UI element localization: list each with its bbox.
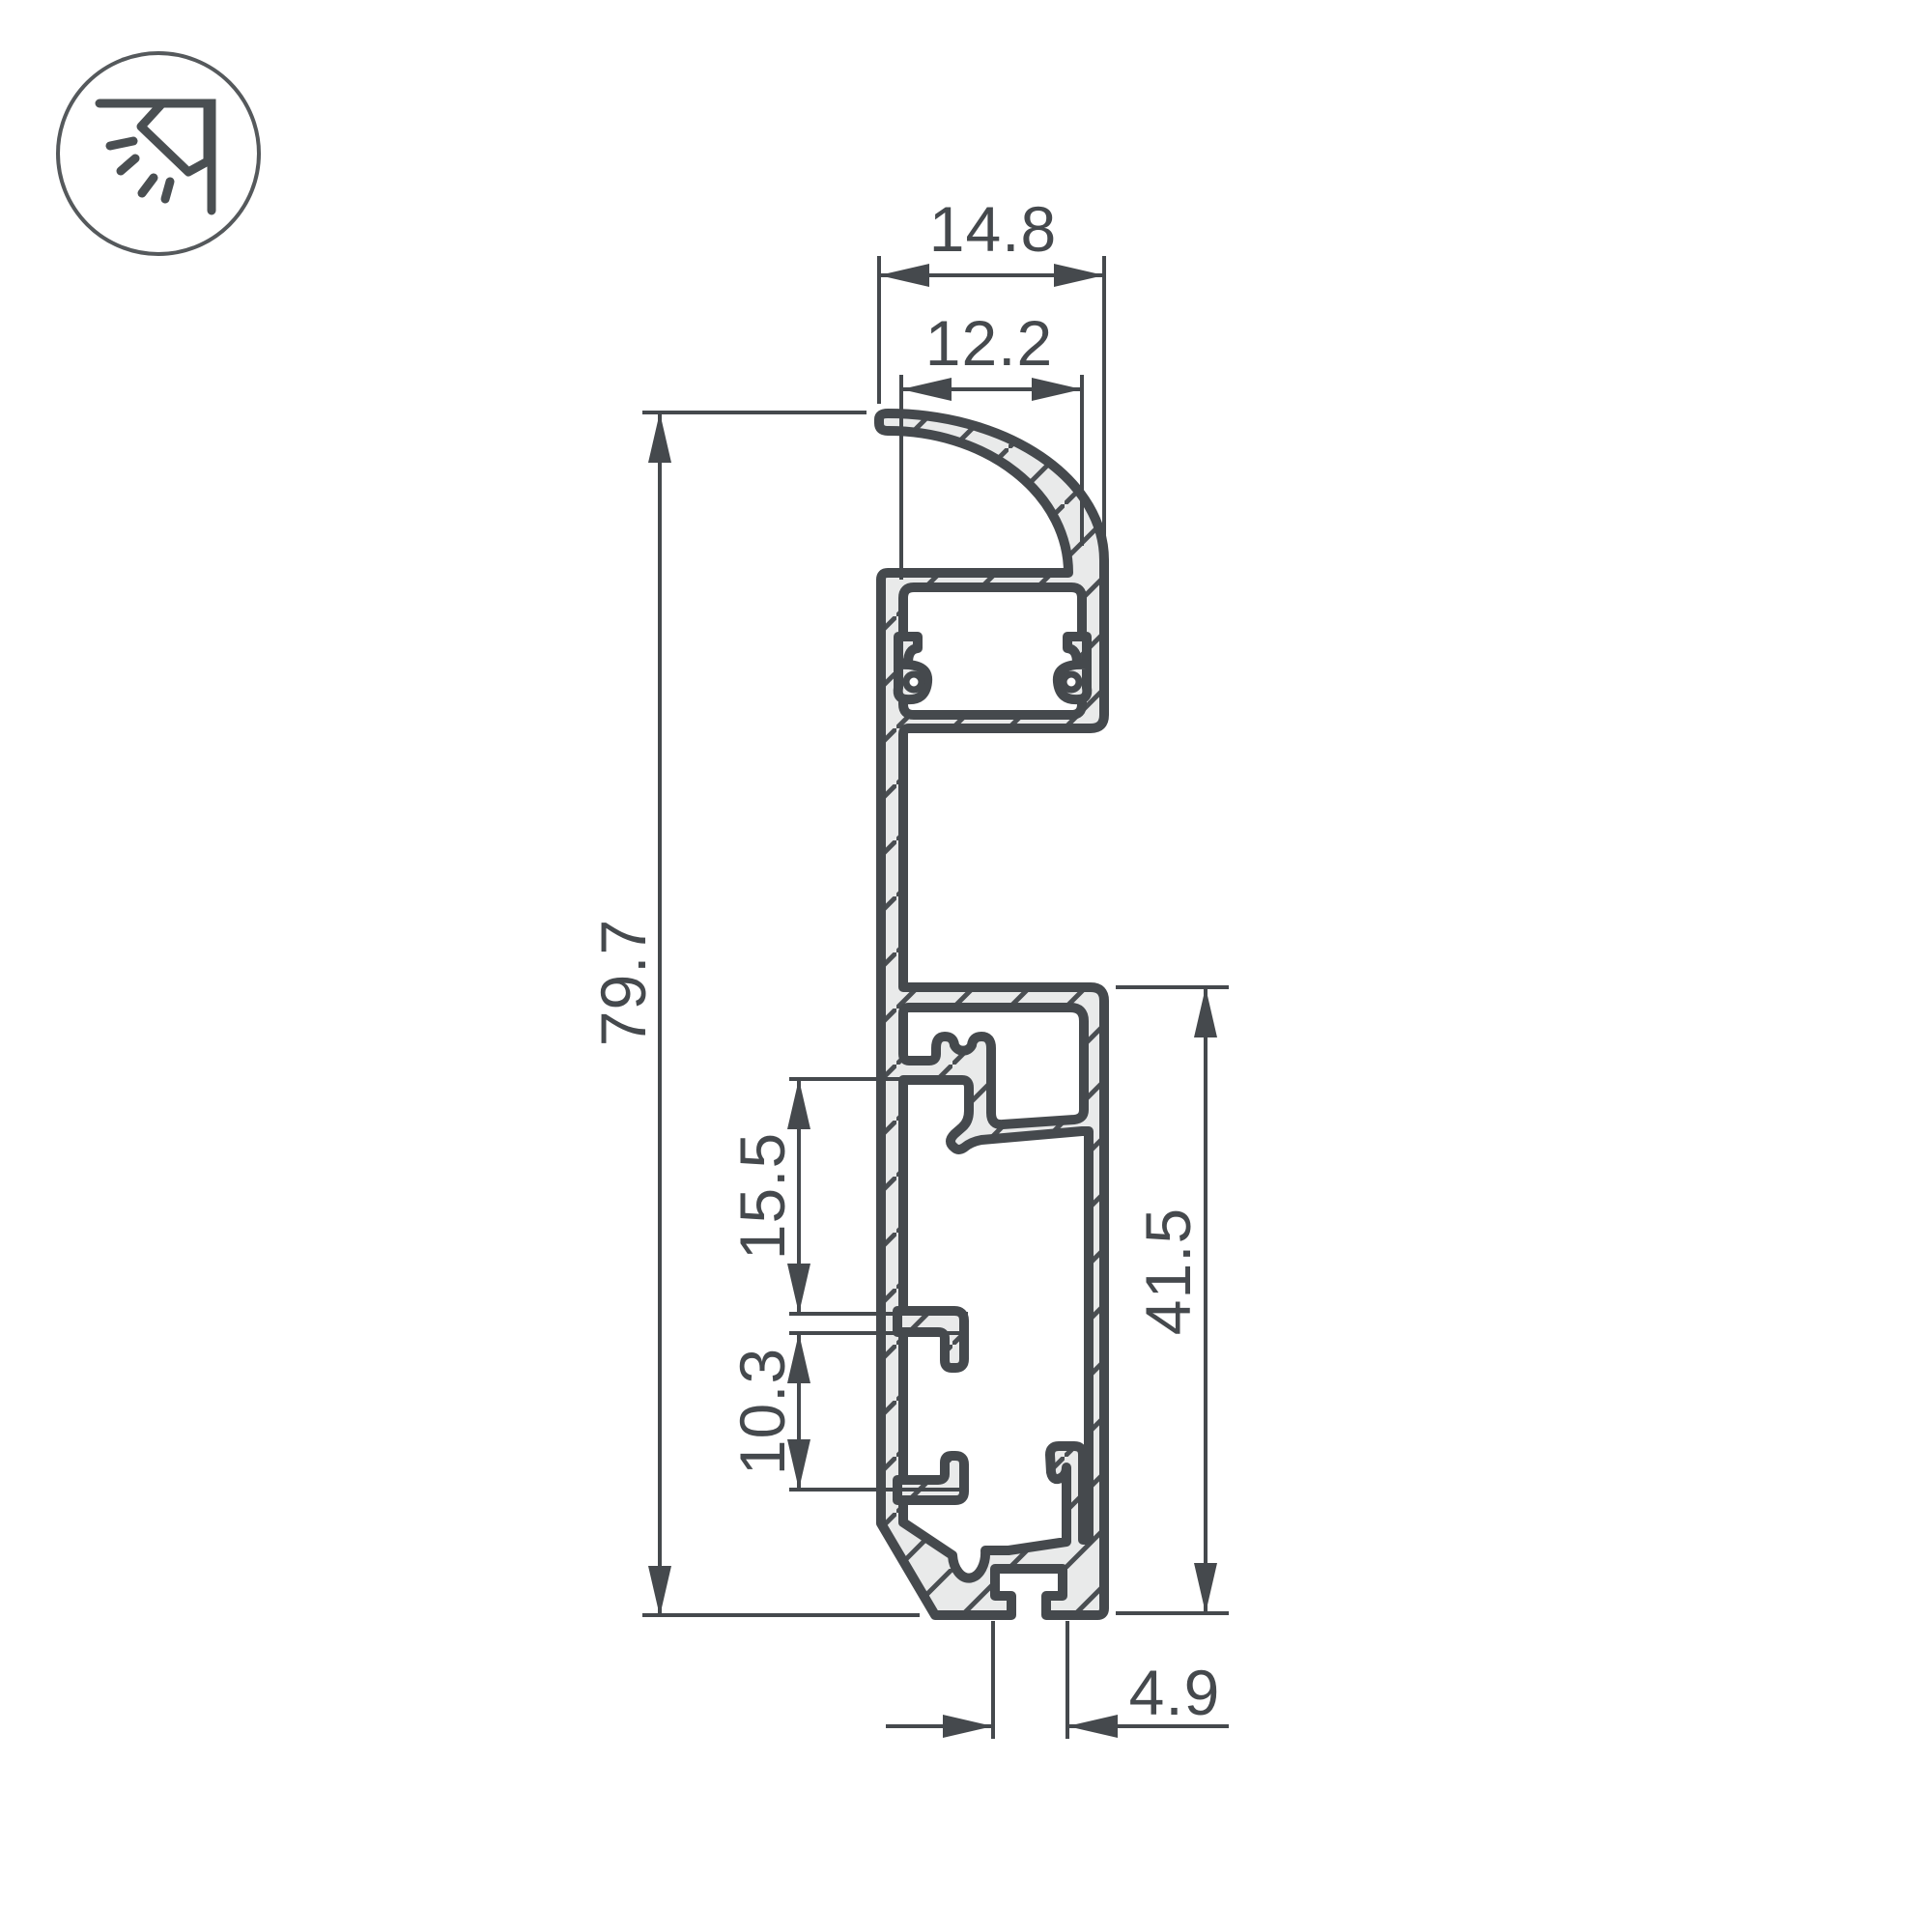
dimension-base-height: 41.5 [1116,987,1229,1613]
icon-circle [58,53,259,254]
dimension-label: 4.9 [1129,1657,1221,1728]
dimension-mount-slot-width: 4.9 [886,1621,1229,1739]
dimension-clip-to-hook: 15.5 [726,1079,968,1314]
wall-light-icon [58,53,259,254]
dimension-label: 12.2 [925,307,1053,379]
lamp-glyph [141,103,208,172]
drawing-canvas: 14.8 12.2 79.7 15.5 [0,0,1932,1932]
dimension-label: 14.8 [929,193,1057,265]
dimension-label: 79.7 [587,919,659,1046]
profile-body [879,413,1104,1615]
clip-ear-left-groove [906,674,922,690]
dimension-label: 41.5 [1132,1207,1204,1335]
clip-ear-right-groove [1064,674,1079,690]
channel-ledge-right [1067,637,1087,664]
profile-cross-section-drawing: 14.8 12.2 79.7 15.5 [0,0,1932,1932]
channel-ledge-left [898,637,918,664]
profile-outline [879,413,1104,1615]
dimension-label: 15.5 [726,1132,798,1260]
dimension-hook-spacing: 10.3 [726,1333,968,1490]
dimension-label: 10.3 [726,1348,798,1475]
